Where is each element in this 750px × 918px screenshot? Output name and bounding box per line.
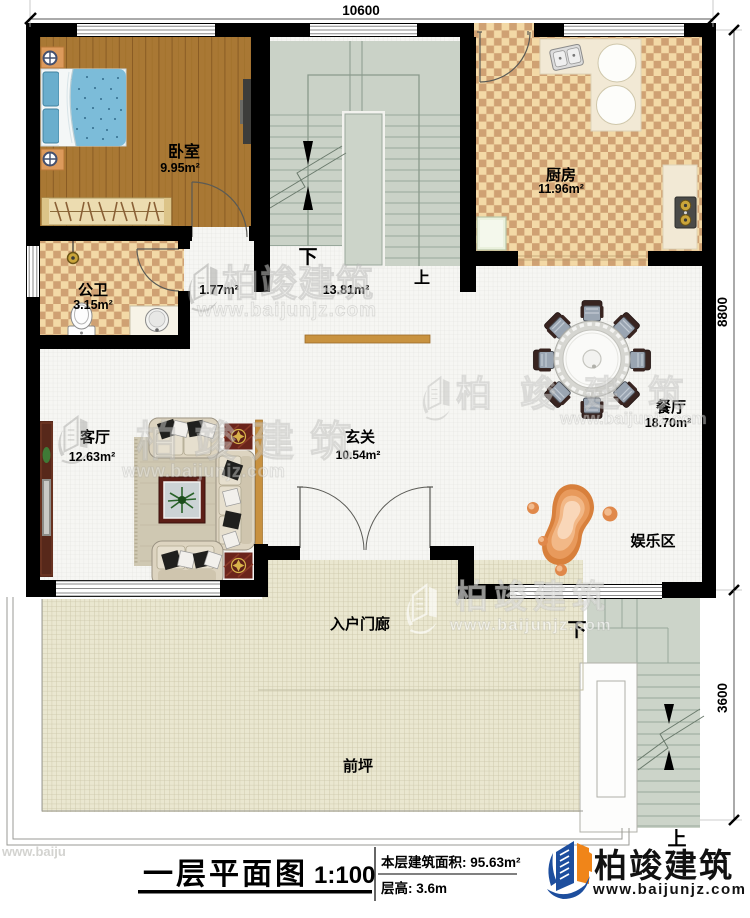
svg-text:www.baijunjz.com: www.baijunjz.com	[559, 409, 707, 428]
svg-text:1:100: 1:100	[314, 862, 375, 889]
svg-text:入户门廊: 入户门廊	[330, 615, 390, 633]
svg-text:柏竣建筑: 柏竣建筑	[222, 262, 374, 304]
svg-text:11.96m²: 11.96m²	[538, 182, 584, 196]
svg-text:一层平面图: 一层平面图	[143, 858, 308, 891]
svg-text:www.baijunjz.com: www.baijunjz.com	[592, 881, 746, 898]
svg-text:www.baijunjz.com: www.baijunjz.com	[196, 300, 377, 321]
svg-text:层高: 3.6m: 层高: 3.6m	[381, 880, 447, 896]
svg-text:卧室: 卧室	[168, 142, 200, 161]
svg-text:公卫: 公卫	[78, 282, 108, 299]
svg-text:9.95m²: 9.95m²	[160, 161, 200, 175]
svg-text:3600: 3600	[715, 683, 730, 713]
svg-text:8800: 8800	[715, 297, 730, 327]
svg-text:前坪: 前坪	[343, 757, 373, 775]
svg-text:本层建筑面积: 95.63m²: 本层建筑面积: 95.63m²	[381, 854, 521, 870]
svg-text:3.15m²: 3.15m²	[73, 298, 113, 312]
svg-text:柏竣建筑: 柏竣建筑	[136, 418, 368, 465]
svg-text:www.baijunjz.com: www.baijunjz.com	[121, 461, 285, 481]
svg-text:www.baiju: www.baiju	[1, 844, 66, 859]
svg-text:柏竣建筑: 柏竣建筑	[455, 578, 611, 615]
svg-text:www.baijunjz.com: www.baijunjz.com	[449, 617, 612, 634]
svg-text:上: 上	[414, 269, 430, 287]
svg-text:柏竣建筑: 柏竣建筑	[456, 373, 712, 414]
svg-text:柏竣建筑: 柏竣建筑	[594, 847, 734, 884]
svg-text:10600: 10600	[342, 3, 380, 18]
svg-text:娱乐区: 娱乐区	[630, 532, 675, 550]
